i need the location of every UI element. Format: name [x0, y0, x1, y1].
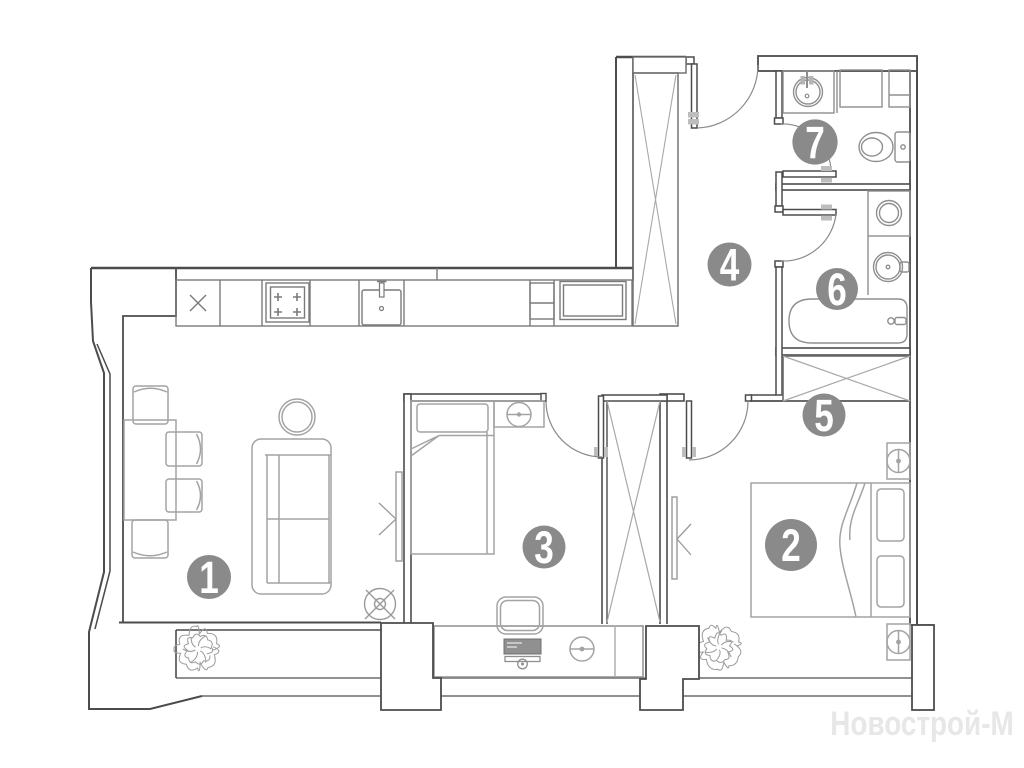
svg-text:2: 2: [781, 520, 801, 571]
svg-text:7: 7: [805, 117, 825, 168]
svg-text:4: 4: [720, 239, 740, 290]
svg-text:6: 6: [827, 264, 847, 315]
svg-text:3: 3: [534, 522, 554, 573]
svg-text:5: 5: [814, 390, 834, 441]
svg-text:1: 1: [199, 552, 219, 603]
